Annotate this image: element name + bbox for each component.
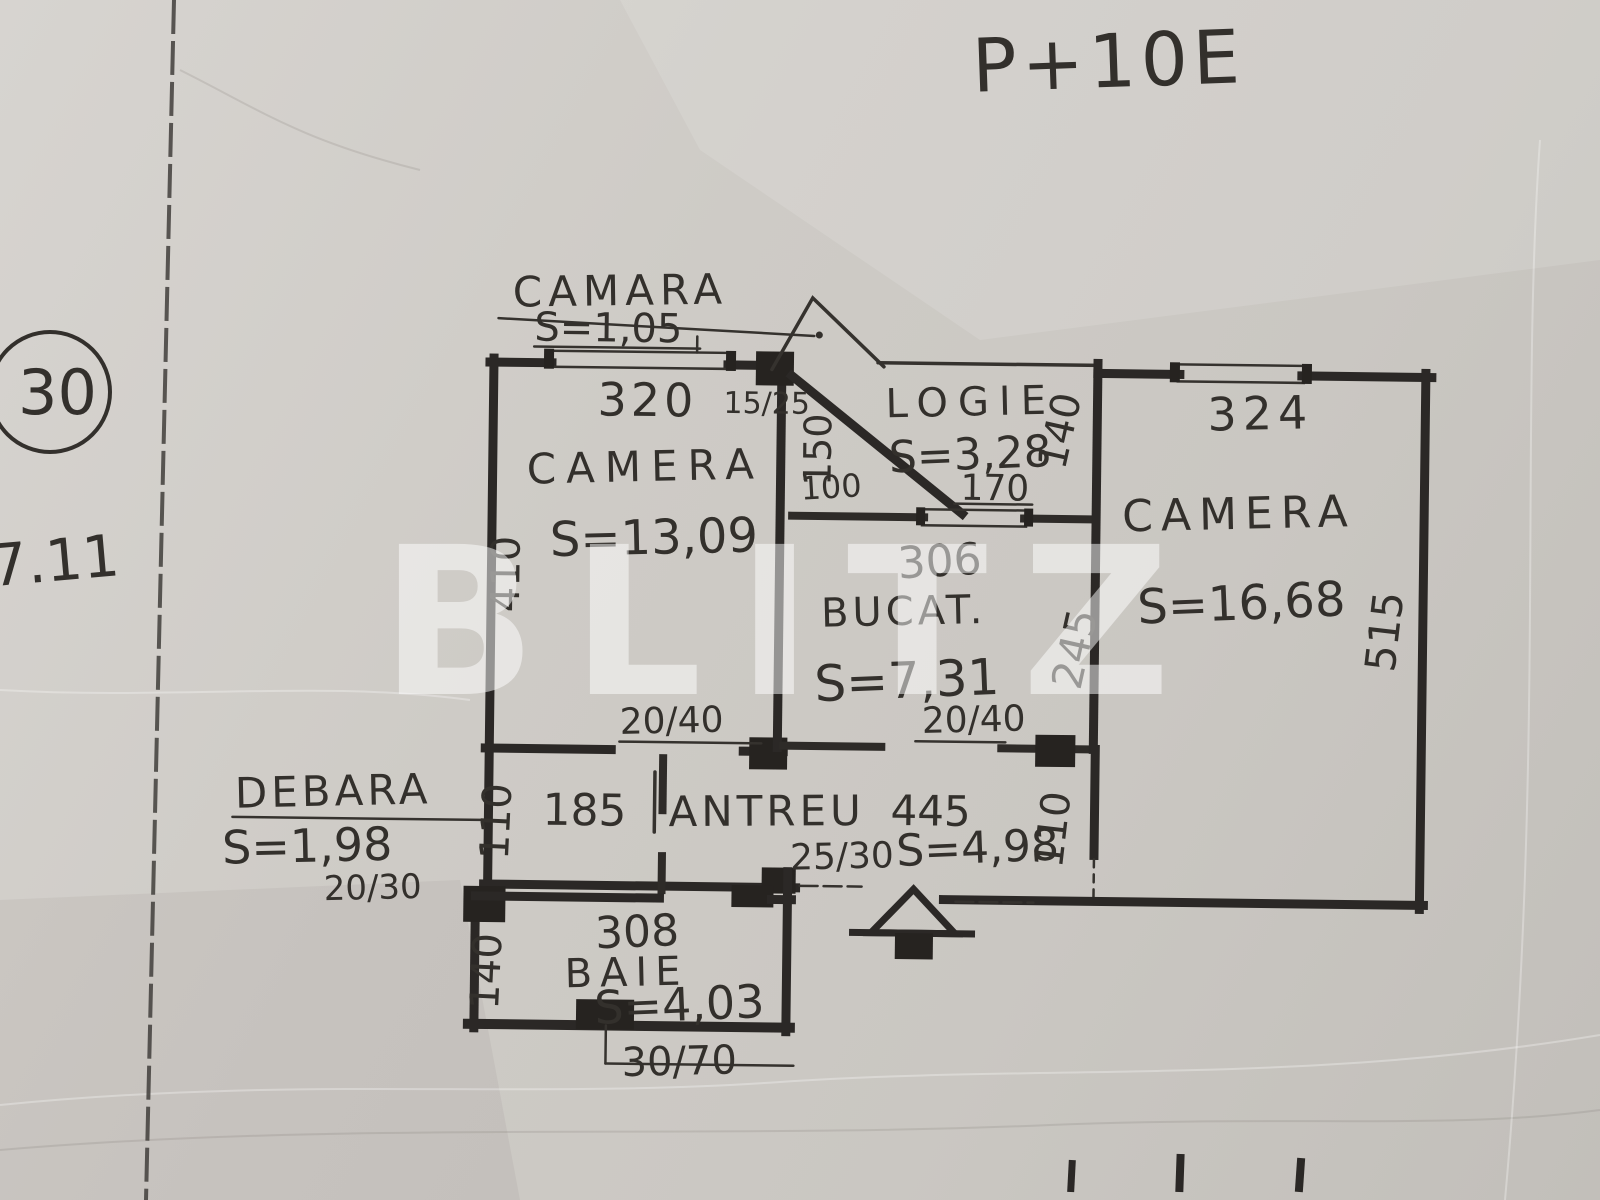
room-label-camera-left: CAMERA <box>526 439 764 493</box>
dim-baie-vent: 30/70 <box>621 1037 737 1086</box>
dim-debara-door: 20/30 <box>323 867 422 909</box>
room-label-antreu: ANTREU <box>668 786 865 836</box>
scanned-floor-plan-page: 30 7.11 P+10E <box>0 0 1600 1200</box>
dim-debara-width: 185 <box>542 785 627 837</box>
dim-baie-depth: 140 <box>462 932 512 1010</box>
window-camera-right <box>1178 364 1304 383</box>
floor-plan-drawing: 30 7.11 P+10E <box>0 0 1600 1200</box>
building-regime: P+10E <box>971 14 1246 109</box>
dim-camera-left-width: 320 <box>597 372 697 427</box>
room-label-debara: DEBARA <box>234 764 432 817</box>
dim-antreu-window: 25/30 <box>790 835 895 878</box>
window-camera-left <box>550 351 730 369</box>
dim-niche-width: 100 <box>799 466 862 507</box>
room-area-debara: S=1,98 <box>222 817 393 875</box>
loggia-parapet <box>878 363 1098 366</box>
dim-camera-right-depth: 515 <box>1356 589 1414 674</box>
dim-antreu-left-depth: 110 <box>472 782 522 860</box>
dim-antreu-right-depth: 110 <box>1026 789 1081 870</box>
room-area-baie: S=4,03 <box>593 974 765 1035</box>
room-label-logie: LOGIE <box>885 378 1056 428</box>
dim-camera-right-width: 324 <box>1207 385 1314 441</box>
watermark: BLITZ <box>380 503 1205 743</box>
plan-number: 30 <box>18 356 97 429</box>
sheet-ref: 7.11 <box>0 521 122 600</box>
bottom-tick-marks <box>1067 1154 1305 1192</box>
room-area-camara: S=1,05 <box>534 305 683 353</box>
